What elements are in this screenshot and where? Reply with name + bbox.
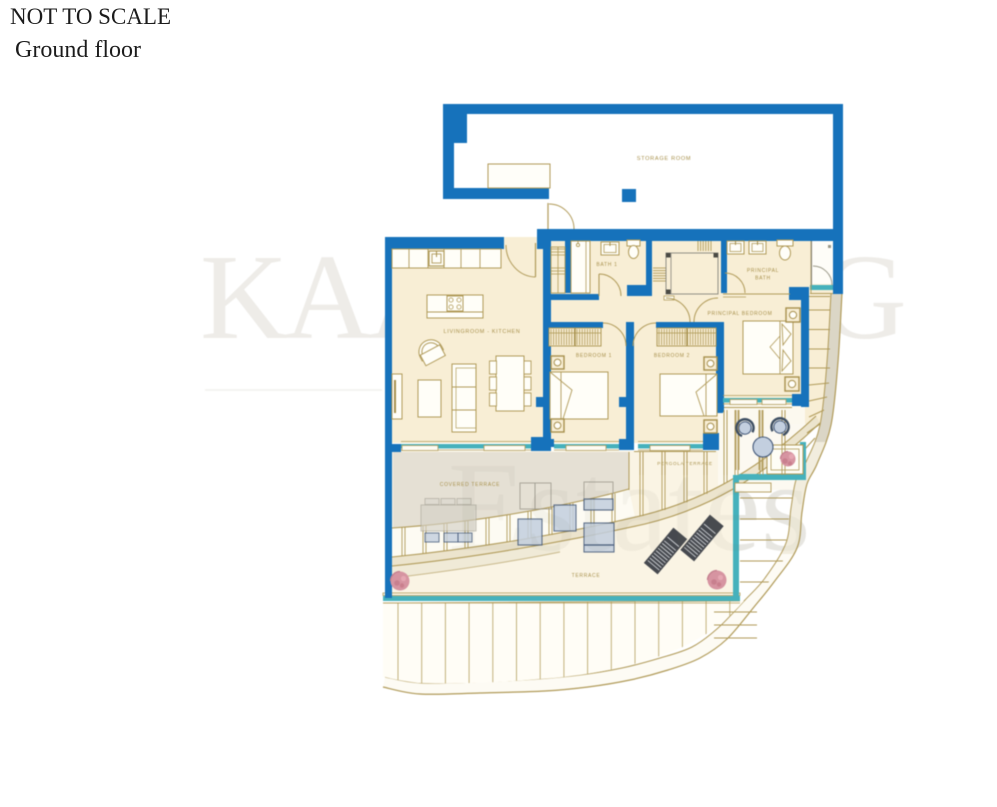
svg-text:BATH: BATH — [755, 276, 771, 282]
svg-text:STORAGE ROOM: STORAGE ROOM — [637, 156, 692, 162]
svg-text:BATH 1: BATH 1 — [596, 262, 617, 268]
svg-text:Estates: Estates — [448, 436, 811, 578]
svg-text:BEDROOM 1: BEDROOM 1 — [576, 353, 612, 359]
svg-text:BEDROOM 2: BEDROOM 2 — [654, 353, 690, 359]
svg-text:PRINCIPAL: PRINCIPAL — [747, 268, 779, 274]
svg-text:LIVINGROOM - KITCHEN: LIVINGROOM - KITCHEN — [444, 329, 521, 335]
svg-text:PRINCIPAL BEDROOM: PRINCIPAL BEDROOM — [708, 311, 773, 317]
